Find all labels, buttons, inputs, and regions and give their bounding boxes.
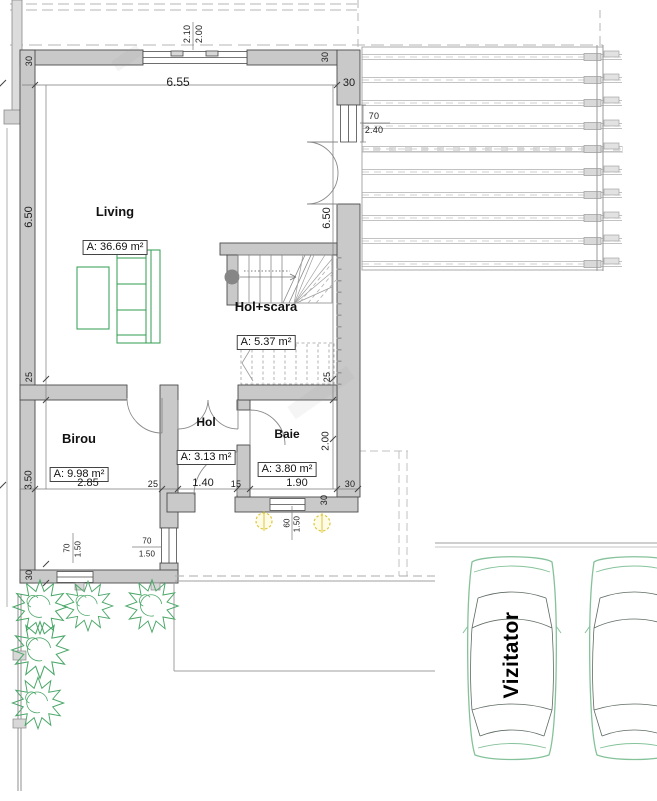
dim-window-top-h2: 2.00 bbox=[194, 25, 204, 43]
dim-wall-top-right: 30 bbox=[320, 52, 330, 62]
dim-wall-bottom-left: 30 bbox=[24, 570, 34, 580]
walls-layer bbox=[20, 50, 360, 583]
room-name: Birou bbox=[50, 432, 109, 446]
dim-window-porch-w: 70 bbox=[142, 537, 151, 546]
dim-window-top-h1: 2.10 bbox=[182, 25, 192, 43]
dim-living-h-right: 6.50 bbox=[321, 207, 333, 228]
room-label-baie: Baie A: 3.80 m² bbox=[258, 427, 317, 477]
dim-window-right-h: 2.40 bbox=[365, 125, 383, 135]
room-area: A: 36.69 m² bbox=[83, 240, 148, 255]
dim-wall-mid-left: 25 bbox=[24, 372, 34, 382]
dim-window-birou-h: 1.50 bbox=[74, 541, 83, 557]
car-second bbox=[585, 557, 657, 760]
stair-newel-post bbox=[225, 270, 240, 285]
dim-living-width: 6.55 bbox=[166, 75, 189, 89]
dim-baie-h: 2.00 bbox=[321, 431, 332, 450]
site-boundary-lines bbox=[7, 0, 603, 607]
parking-visitor-label: Vizitator bbox=[500, 612, 524, 699]
room-label-hol-scara: Hol+scara A: 5.37 m² bbox=[235, 300, 298, 350]
room-label-living: Living A: 36.69 m² bbox=[83, 205, 148, 255]
room-name: Hol+scara bbox=[235, 300, 298, 314]
room-label-birou: Birou A: 9.98 m² bbox=[50, 432, 109, 482]
floor-plan-drawing bbox=[0, 0, 657, 801]
dim-chain-wall2: 15 bbox=[231, 479, 241, 489]
dim-living-h-left: 6.50 bbox=[23, 206, 35, 227]
dim-wall-top-left: 30 bbox=[24, 56, 34, 66]
dim-chain-wall1: 25 bbox=[148, 479, 158, 489]
pergola bbox=[362, 45, 623, 271]
dim-window-baie-w: 60 bbox=[283, 518, 292, 527]
room-area: A: 3.13 m² bbox=[177, 450, 236, 465]
room-label-hol: Hol A: 3.13 m² bbox=[177, 415, 236, 465]
dim-chain-baie: 1.90 bbox=[286, 477, 307, 489]
floor-plan: Living A: 36.69 m² Hol+scara A: 5.37 m² … bbox=[0, 0, 657, 801]
room-area: A: 3.80 m² bbox=[258, 462, 317, 477]
room-name: Living bbox=[83, 205, 148, 219]
dim-birou-h: 3.50 bbox=[24, 470, 35, 489]
garden-trees bbox=[12, 580, 179, 729]
dim-window-baie-h: 1.50 bbox=[293, 516, 302, 532]
dim-window-birou-w: 70 bbox=[63, 543, 72, 552]
dim-wall-bottom-right-end: 30 bbox=[319, 495, 329, 505]
dim-window-porch-h: 1.50 bbox=[139, 550, 155, 559]
dim-window-right-w: 70 bbox=[369, 111, 379, 121]
dim-chain-birou: 2.85 bbox=[77, 477, 98, 489]
room-name: Baie bbox=[258, 427, 317, 441]
room-name: Hol bbox=[177, 415, 236, 429]
dim-wall-right: 30 bbox=[343, 77, 355, 89]
dim-chain-hol: 1.40 bbox=[192, 477, 213, 489]
fence bbox=[13, 594, 26, 791]
coffee-table-icon bbox=[77, 267, 109, 329]
room-area: A: 5.37 m² bbox=[237, 335, 296, 350]
sofa-icon bbox=[117, 250, 160, 343]
dim-chain-wall3: 30 bbox=[345, 479, 355, 489]
dim-stair-strip: 25 bbox=[322, 372, 332, 382]
